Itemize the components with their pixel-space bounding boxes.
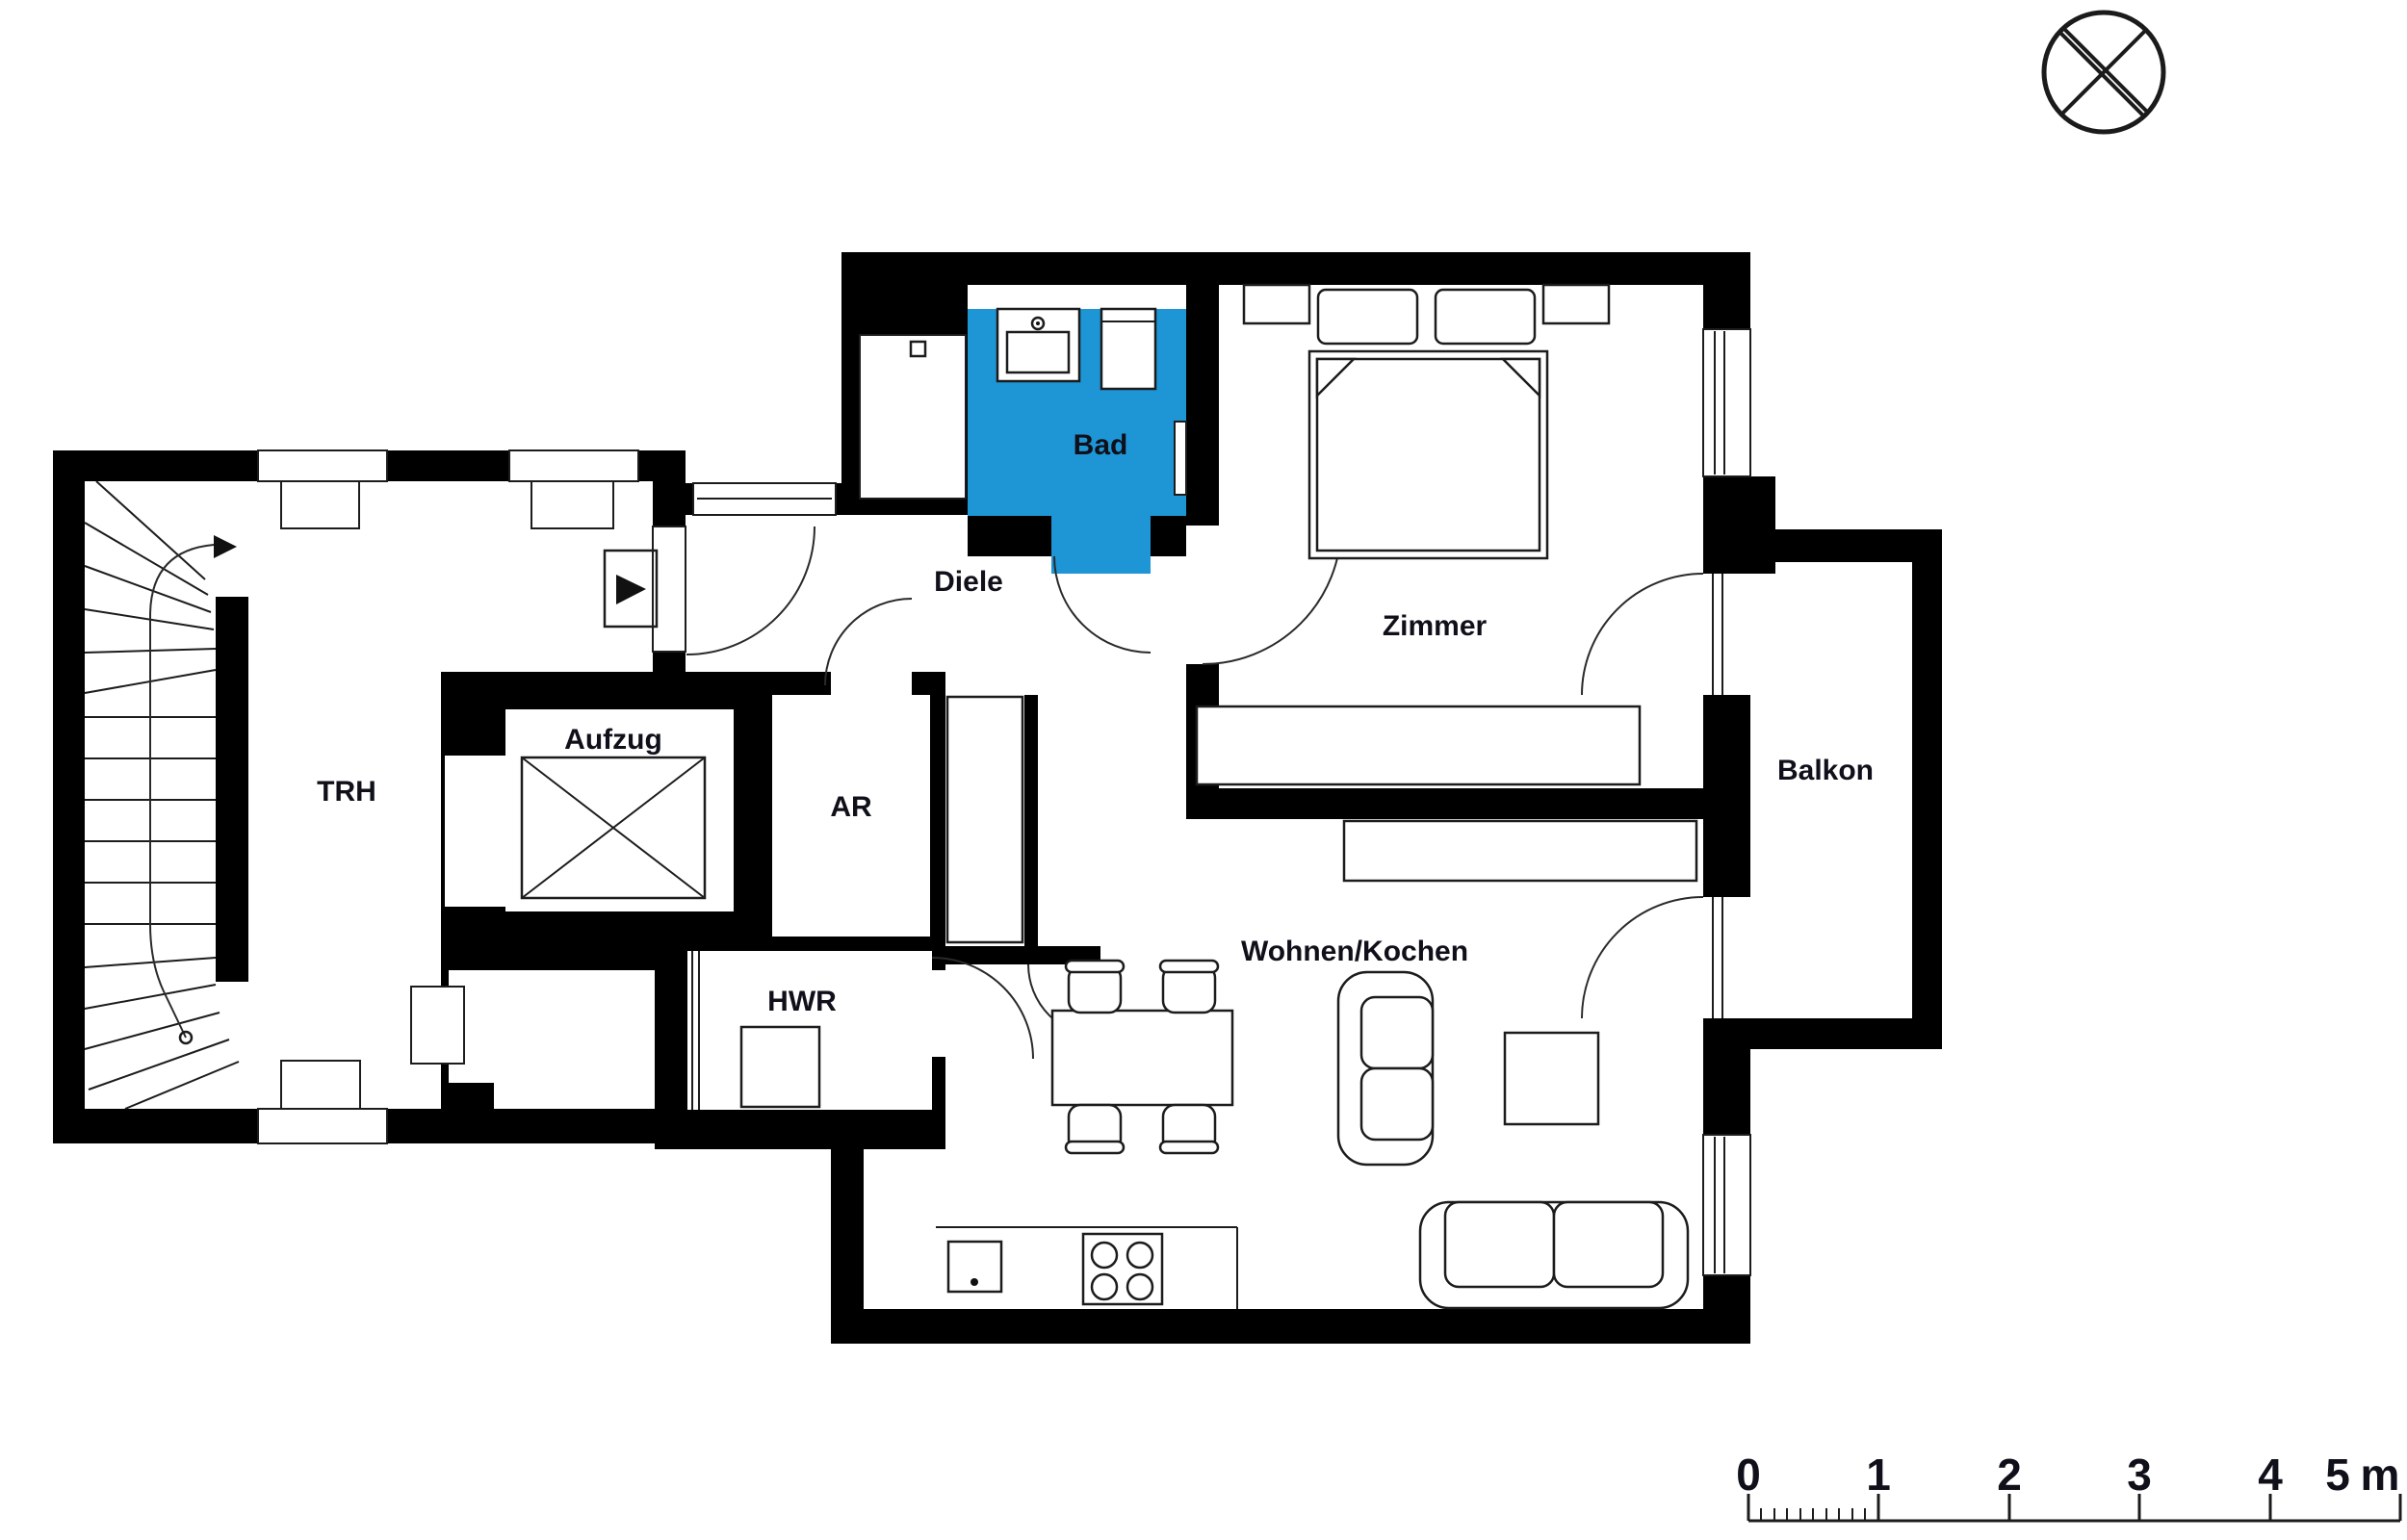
wall-hwr-north (655, 937, 945, 951)
washbasin (997, 309, 1079, 381)
scale-number-5: 5 (2325, 1450, 2350, 1500)
wardrobe (947, 697, 1022, 942)
room-label-diele: Diele (934, 566, 1003, 598)
stair-direction-arrow-icon (214, 535, 237, 558)
wall-zimmer-west-upper (1186, 285, 1219, 526)
wall-zimmer-south (1197, 788, 1703, 819)
chair-back (1066, 961, 1124, 972)
chair-back (1160, 961, 1218, 972)
bad-door-leaf (1175, 422, 1186, 495)
trh-lower-door-leaf (411, 987, 464, 1064)
double-bed (1309, 351, 1547, 558)
trh-window-3 (258, 1109, 387, 1143)
room-label-aufzug: Aufzug (564, 724, 662, 756)
wall-balcony-right (1912, 529, 1942, 1049)
hwr-door-arc (932, 958, 1033, 1059)
trh-window-1 (258, 450, 387, 481)
floor-plan-canvas: 0 1 2 3 4 5 m TRH Aufzug AR HWR Diele Ba… (0, 0, 2407, 1540)
wall-right-d (1703, 1275, 1750, 1344)
balcony-door-wohnen-arc (1582, 897, 1703, 1018)
chair-back (1160, 1142, 1218, 1153)
scale-number-1: 1 (1866, 1450, 1891, 1500)
entrance-door-arc (686, 526, 815, 654)
wall-right-a (1703, 285, 1750, 329)
wohnen-east-window (1703, 1135, 1750, 1275)
nightstand-left (1244, 285, 1309, 323)
balcony-door-zimmer-opening (1703, 574, 1750, 695)
kitchen-counter-top (1344, 821, 1696, 881)
wall-trh-left (53, 450, 85, 1143)
pillow-left (1318, 290, 1417, 344)
wall-right-pillar (1703, 695, 1750, 897)
room-label-zimmer: Zimmer (1383, 610, 1488, 642)
ar-door-arc (825, 599, 912, 685)
wall-bad-south-west (968, 516, 1051, 556)
window-sill-3 (281, 1061, 360, 1109)
wall-hwr-east-b (932, 1057, 945, 1110)
scale-number-2: 2 (1997, 1450, 2022, 1500)
pillow-right (1436, 290, 1535, 344)
niche-below-elevator (494, 970, 655, 1109)
scale-number-3: 3 (2127, 1450, 2152, 1500)
wall-main-top (841, 252, 1750, 285)
wall-bad-south-east (1151, 516, 1186, 556)
room-label-balkon: Balkon (1777, 755, 1874, 786)
sideboard (1197, 706, 1640, 784)
window-sill-1 (281, 481, 359, 528)
room-label-wohnen-kochen: Wohnen/Kochen (1241, 936, 1468, 967)
chair-back (1066, 1142, 1124, 1153)
window-sill-2 (531, 481, 613, 528)
washing-machine (741, 1027, 819, 1107)
scale-unit: m (2361, 1450, 2400, 1500)
room-label-hwr: HWR (767, 986, 837, 1017)
sink-drain-icon (971, 1278, 978, 1286)
balcony-door-zimmer-arc (1582, 574, 1703, 695)
wall-main-bottom (831, 1309, 1750, 1344)
coffee-table (1505, 1033, 1598, 1124)
wall-closet-east (1024, 695, 1038, 964)
scale-bar: 0 1 2 3 4 5 m (1736, 1450, 2400, 1521)
wall-hwr-south (655, 1110, 945, 1149)
room-label-ar: AR (830, 791, 872, 823)
bedroom-furniture (1197, 285, 1640, 784)
stair-walkline (150, 545, 214, 1038)
room-label-trh: TRH (317, 776, 376, 808)
wall-stair-side (216, 597, 248, 982)
entrance-marker (605, 551, 657, 627)
wall-right-c (1703, 1018, 1750, 1135)
wall-entry-upper (653, 481, 686, 526)
nightstand-right (1543, 285, 1609, 323)
compass-crosshair-icon (2044, 13, 2163, 132)
wall-ar-east (930, 672, 945, 951)
room-label-bad: Bad (1074, 429, 1128, 461)
entrance-arrow-icon (616, 575, 646, 604)
installation-shaft (860, 335, 966, 499)
zimmer-east-window (1703, 329, 1750, 476)
elevator-door-opening (445, 756, 505, 907)
scale-number-0: 0 (1736, 1450, 1761, 1500)
scale-number-4: 4 (2258, 1450, 2283, 1500)
wall-balcony-bottom (1750, 1018, 1942, 1049)
balcony-door-wohnen-opening (1703, 897, 1750, 1018)
floor-plan-drawing: 0 1 2 3 4 5 m TRH Aufzug AR HWR Diele Ba… (0, 0, 2407, 1540)
trh-window-2 (509, 450, 638, 481)
wall-ar-west (739, 672, 772, 951)
dining-table (1052, 1011, 1232, 1105)
